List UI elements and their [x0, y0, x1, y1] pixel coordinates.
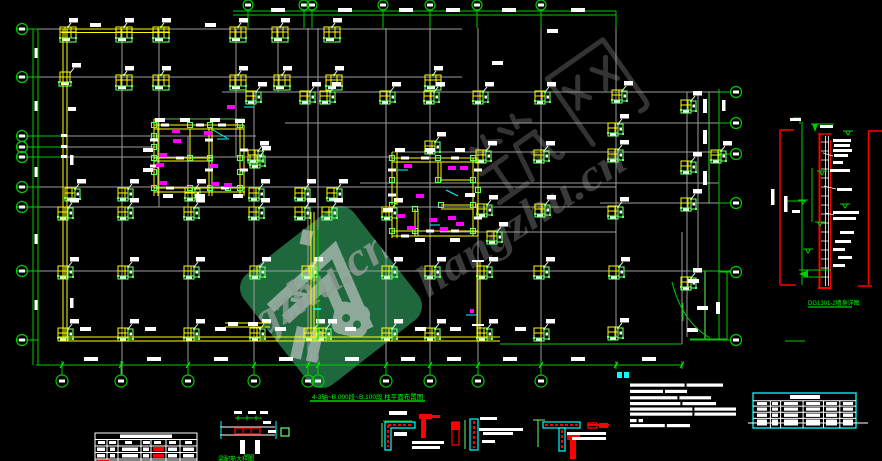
svg-text:4-3轴~B.000段~B.100段 柱平面布置图: 4-3轴~B.000段~B.100段 柱平面布置图 [312, 392, 423, 401]
svg-text:梁配筋大样图: 梁配筋大样图 [218, 455, 254, 461]
svg-text:DG1301-2墙身详图: DG1301-2墙身详图 [808, 299, 860, 307]
